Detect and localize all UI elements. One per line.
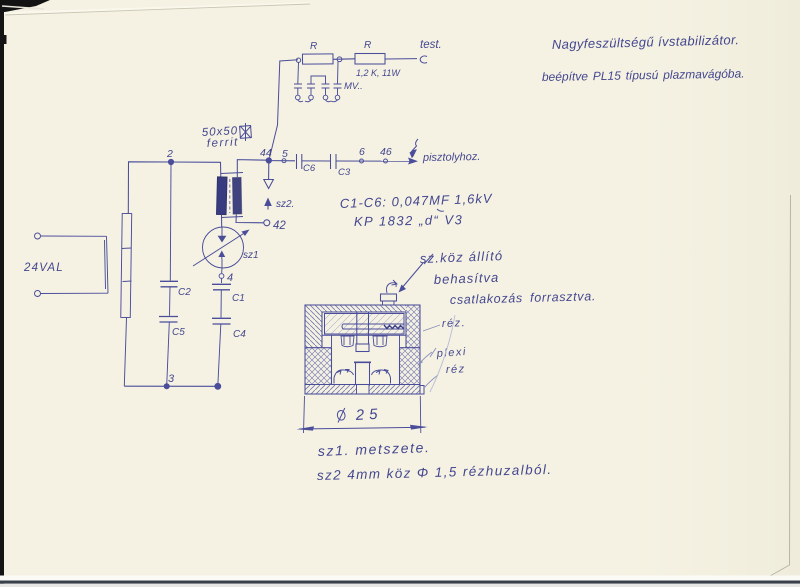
svg-text:4: 4 (227, 272, 233, 284)
svg-text:MV..: MV.. (344, 81, 363, 92)
svg-text:25: 25 (354, 406, 383, 424)
svg-text:2: 2 (166, 148, 173, 160)
svg-text:1,2 K, 11W: 1,2 K, 11W (356, 68, 401, 78)
svg-text:C3: C3 (338, 167, 351, 178)
svg-text:R: R (364, 40, 371, 51)
svg-text:46: 46 (380, 146, 392, 158)
svg-text:24VAL: 24VAL (23, 262, 64, 274)
svg-text:ferrit: ferrit (207, 136, 240, 150)
svg-text:sz1: sz1 (243, 250, 259, 261)
svg-text:C6: C6 (303, 163, 316, 174)
svg-text:5: 5 (282, 148, 288, 160)
svg-text:sz2.: sz2. (276, 199, 294, 210)
svg-text:pisztolyhoz.: pisztolyhoz. (422, 151, 481, 164)
svg-text:42: 42 (273, 220, 286, 232)
svg-text:KP 1832 „d“ V3: KP 1832 „d“ V3 (354, 212, 464, 229)
svg-text:behasítva: behasítva (434, 270, 500, 287)
svg-text:44: 44 (260, 147, 272, 159)
svg-text:C4: C4 (233, 329, 246, 340)
svg-text:R: R (310, 41, 317, 52)
svg-text:3: 3 (168, 373, 175, 385)
svg-text:C1: C1 (232, 293, 245, 304)
svg-text:test.: test. (420, 39, 442, 51)
svg-text:6: 6 (359, 146, 365, 158)
svg-text:C5: C5 (172, 327, 185, 338)
svg-text:sz.köz állító: sz.köz állító (420, 248, 504, 266)
svg-text:C2: C2 (178, 287, 191, 298)
svg-text:réz: réz (446, 363, 466, 376)
svg-text:plexi: plexi (435, 346, 467, 360)
